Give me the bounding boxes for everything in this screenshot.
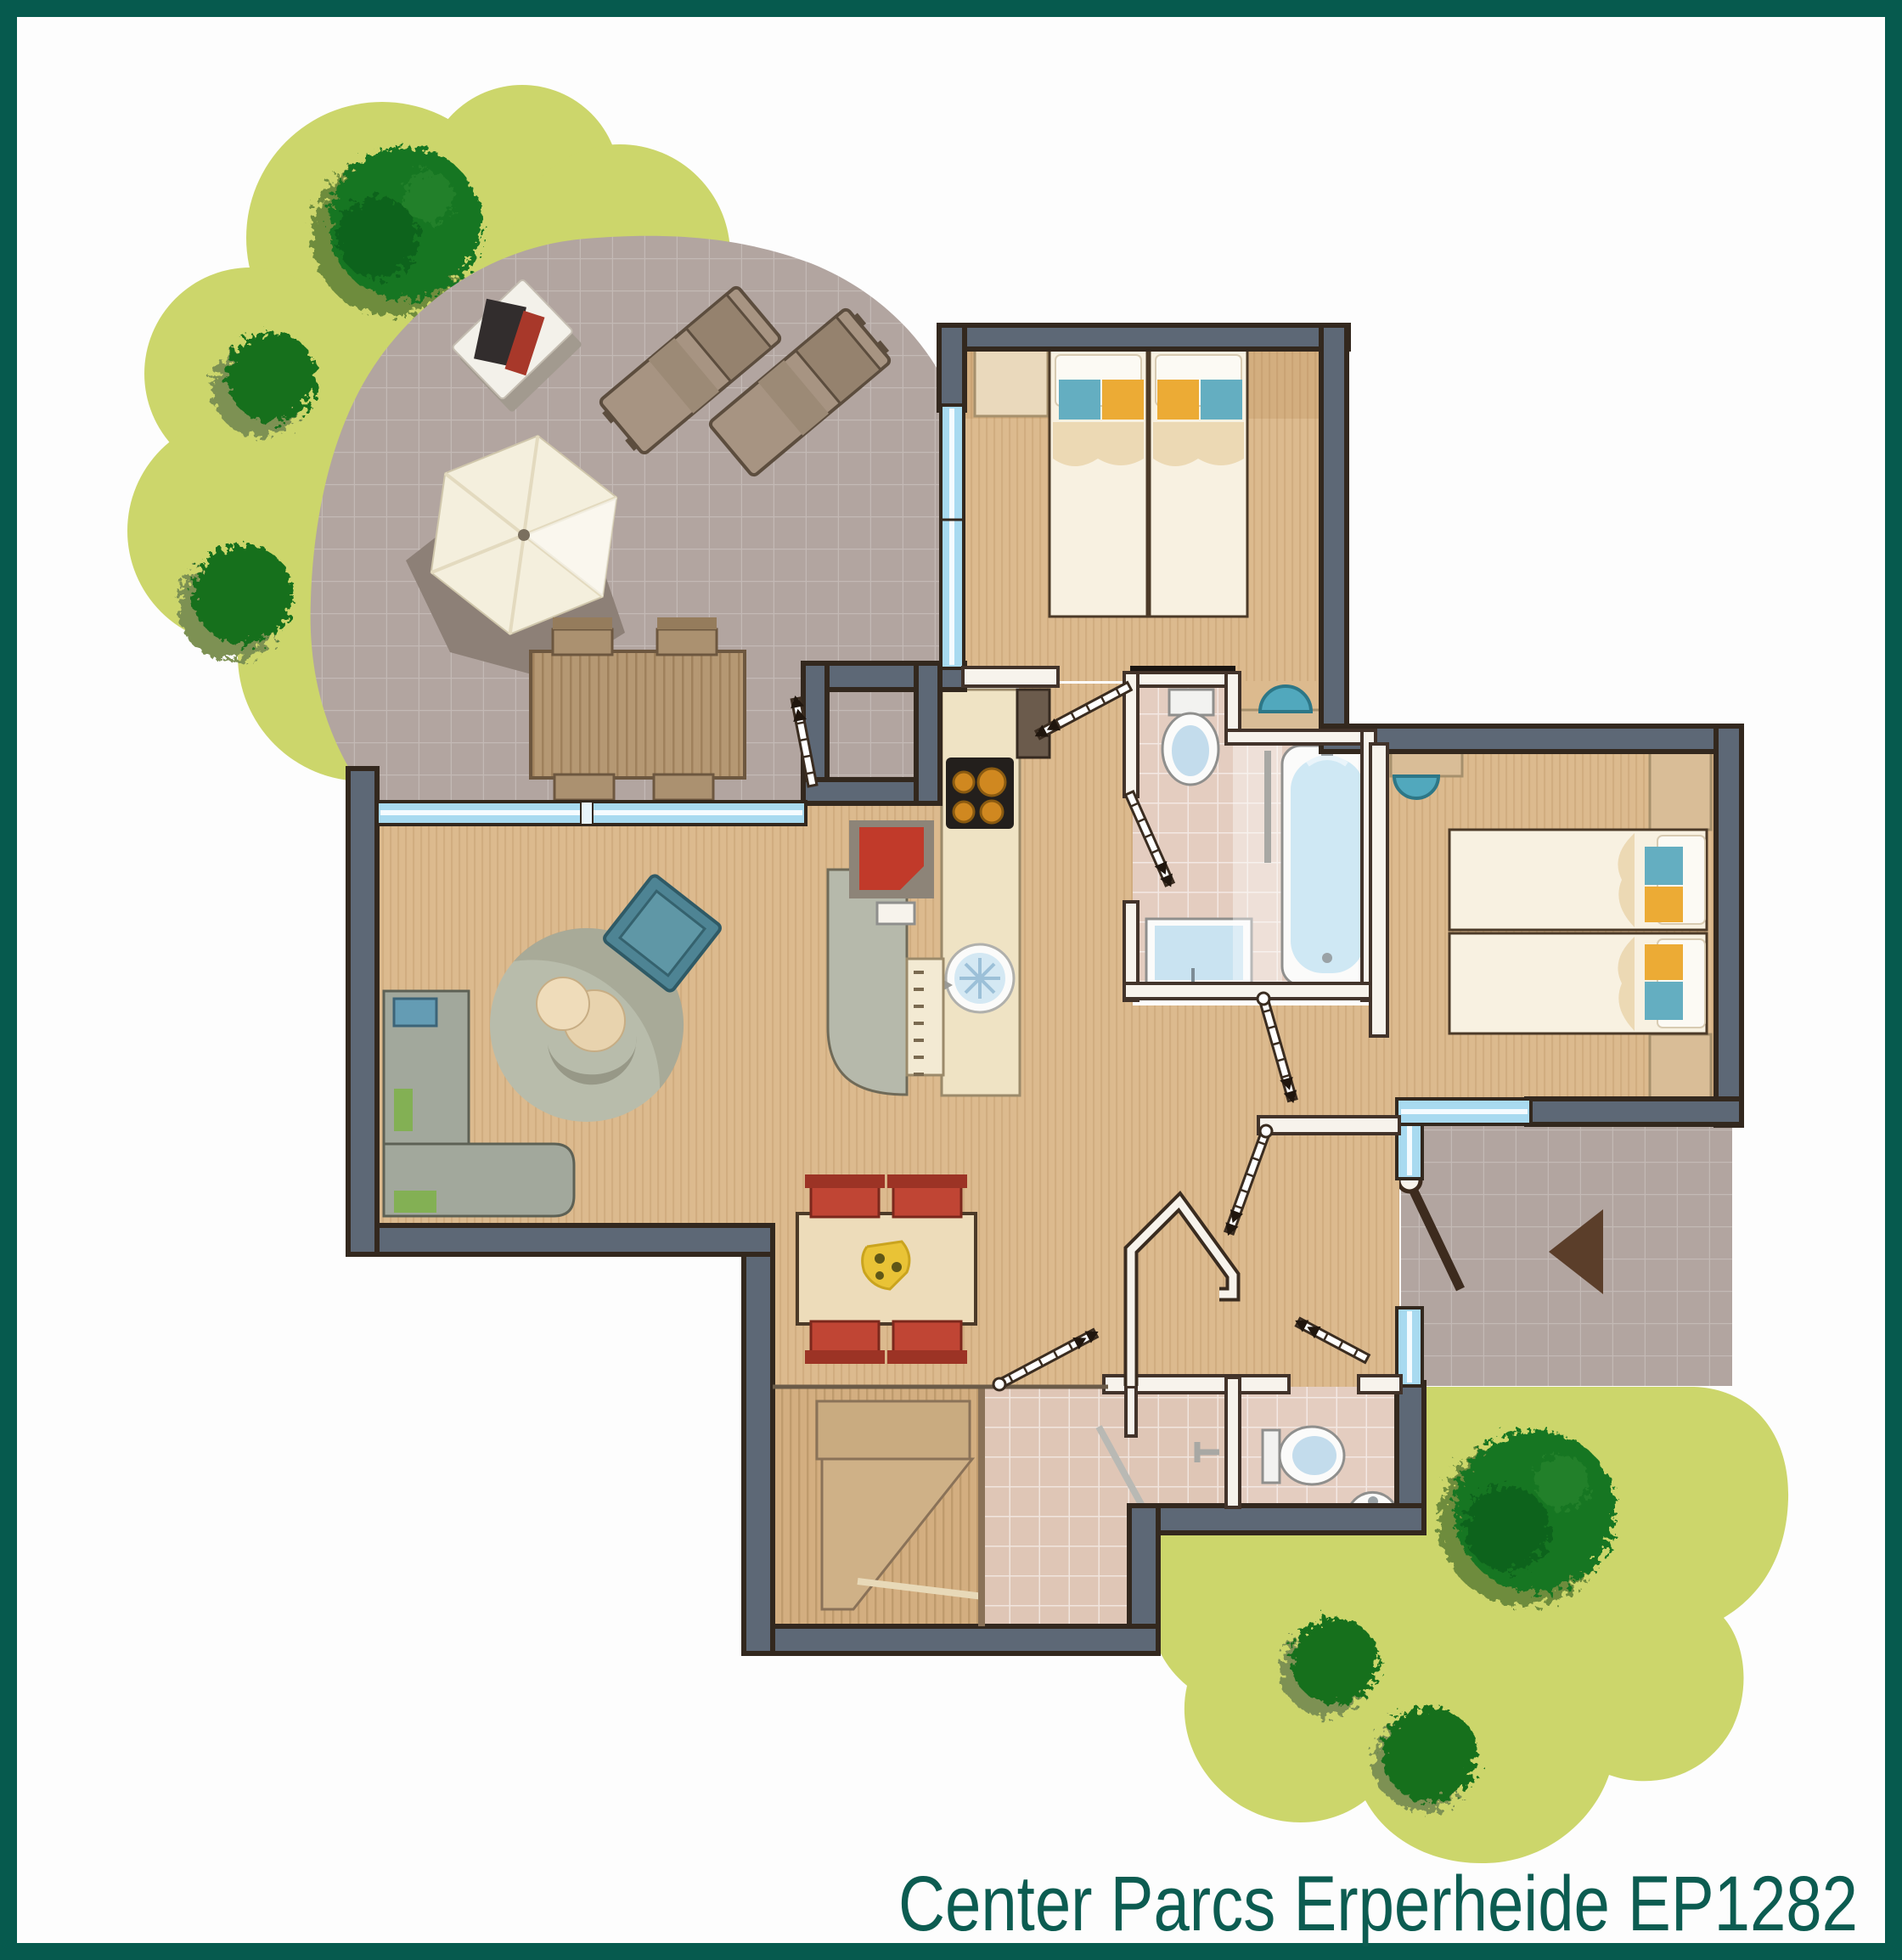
svg-text:Center Parcs Erperheide EP1282: Center Parcs Erperheide EP1282 [898, 1861, 1858, 1947]
